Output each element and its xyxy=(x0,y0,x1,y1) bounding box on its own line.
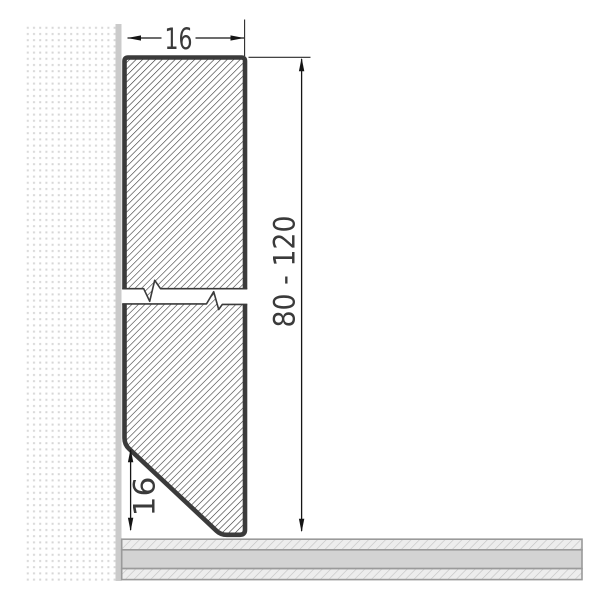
skirting-section-drawing: 16 80 - 120 16 xyxy=(0,0,604,604)
floor-layer-middle xyxy=(122,550,582,569)
height-arrow-down-icon xyxy=(299,519,304,533)
width-arrow-right-icon xyxy=(231,35,245,40)
chamfer-arrow-down-icon xyxy=(128,518,133,532)
chamfer-dimension-label: 16 xyxy=(128,477,162,517)
width-arrow-left-icon xyxy=(127,35,141,40)
height-arrow-up-icon xyxy=(299,58,304,72)
floor-layer-bottom xyxy=(122,569,582,580)
height-dimension-label: 80 - 120 xyxy=(268,216,302,328)
wall-face-line xyxy=(116,24,122,581)
floor-layer-top xyxy=(122,539,582,550)
width-dimension-label: 16 xyxy=(165,22,193,56)
profile-upper-fill xyxy=(125,58,246,302)
technical-drawing-canvas: 16 80 - 120 16 xyxy=(0,0,604,604)
wall-stipple-area xyxy=(24,24,116,581)
